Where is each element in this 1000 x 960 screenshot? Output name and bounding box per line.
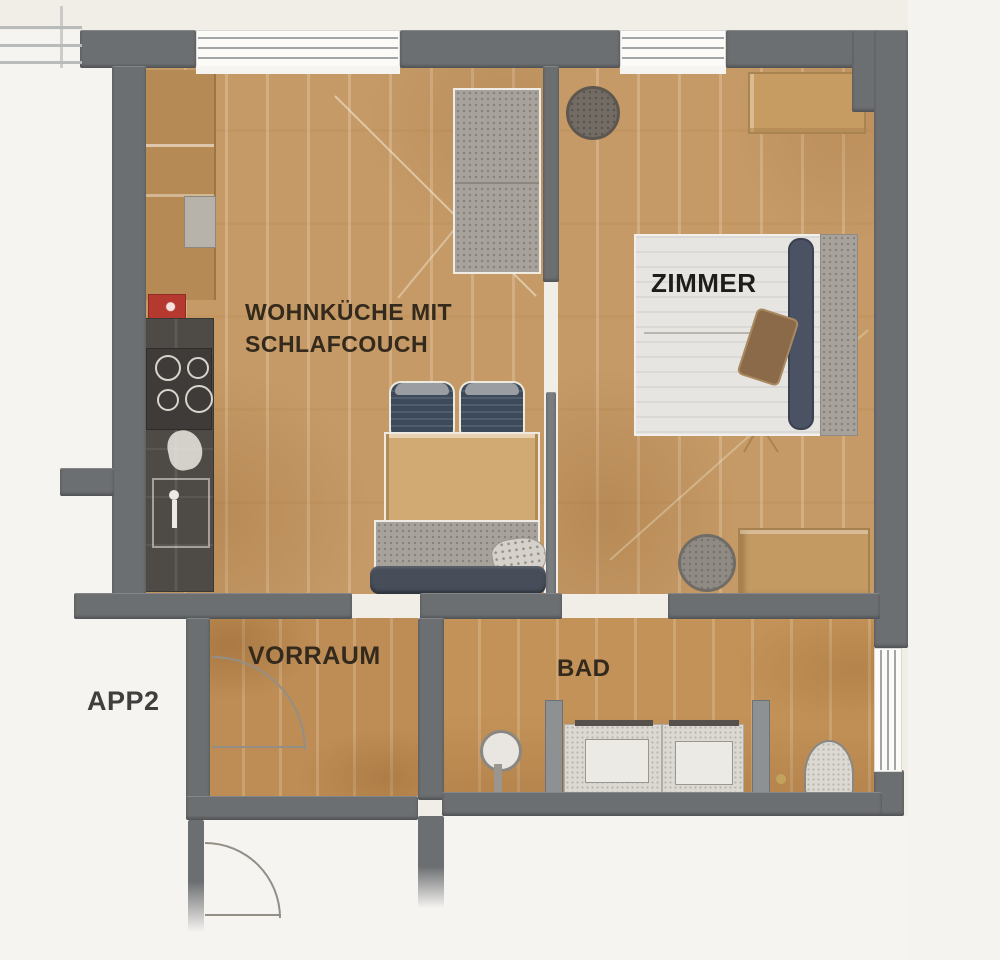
wall-hall-bath-divider: [418, 618, 444, 800]
chair-backrest: [395, 383, 449, 395]
kitchen-counter-dark: [140, 318, 214, 592]
bath-vanity-right: [662, 724, 744, 794]
wall-living-bedroom-lower: [546, 392, 556, 598]
neighbor-window-line: [0, 61, 82, 64]
bath-partition-left: [545, 700, 563, 794]
window-pane-line: [622, 37, 724, 39]
neighbor-wall-line-vertical: [60, 6, 63, 68]
wall-top-left: [80, 30, 196, 68]
vanity-top-bar: [575, 720, 653, 726]
kitchen-counter-upper: [146, 70, 216, 300]
outside-area-bottom: [0, 816, 1000, 960]
wall-middle-horizontal-right: [668, 593, 880, 619]
sofa-cushion-divider: [455, 182, 539, 184]
wall-living-bedroom-upper: [543, 66, 559, 282]
entry-door-leaf: [205, 914, 281, 916]
window-top-left: [196, 30, 400, 68]
bedroom-wardrobe-top: [748, 72, 866, 134]
stove-burner: [155, 355, 181, 381]
vanity-top-bar: [669, 720, 739, 726]
window-pane-line: [894, 650, 896, 770]
neighbor-window-line: [0, 26, 82, 29]
room-label-bedroom: ZIMMER: [651, 268, 757, 299]
stove-burner: [187, 357, 209, 379]
stove-burner: [185, 385, 213, 413]
room-label-living-line1: WOHNKÜCHE MIT: [245, 296, 452, 328]
window-pane-line: [887, 650, 889, 770]
stove-burner: [157, 389, 179, 411]
sink-faucet-dot: [169, 490, 179, 500]
room-label-bath: BAD: [557, 655, 611, 683]
bed-headboard-bench: [820, 234, 858, 436]
kitchen-appliance: [184, 196, 216, 248]
wall-below-divider: [418, 816, 444, 908]
sofa-upper: [453, 88, 541, 274]
sink-faucet: [172, 500, 177, 528]
window-pane-line: [880, 650, 882, 770]
wall-below-hall-left: [188, 820, 204, 932]
hall-door-leaf: [212, 746, 304, 748]
wall-left: [112, 66, 146, 598]
wall-middle-horizontal-center: [420, 593, 562, 619]
wall-left-stub: [60, 468, 114, 496]
counter-white-mark: [164, 427, 206, 473]
window-pane-line: [198, 57, 398, 59]
wall-top-middle: [400, 30, 620, 68]
window-pane-line: [622, 57, 724, 59]
vanity-inner: [675, 741, 733, 785]
apartment-label: APP2: [87, 686, 160, 717]
kitchen-counter-divider-line: [146, 144, 214, 147]
wall-middle-horizontal-left: [74, 593, 352, 619]
room-label-living-line2: SCHLAFCOUCH: [245, 328, 452, 360]
wall-bottom-bath: [442, 792, 882, 816]
window-right: [874, 648, 902, 772]
chair-backrest: [465, 383, 519, 395]
window-pane-line: [198, 47, 398, 49]
wall-right: [874, 30, 908, 648]
room-label-hall: VORRAUM: [248, 642, 381, 671]
window-top-right: [620, 30, 726, 68]
window-pane-line: [198, 37, 398, 39]
outside-area-right: [908, 0, 1000, 960]
bath-washbasin-pedestal: [494, 764, 502, 792]
window-sill: [620, 66, 726, 74]
bath-gold-fitting: [776, 774, 786, 784]
bath-partition-right: [752, 700, 770, 794]
sink-outline: [152, 478, 210, 548]
window-pane-line: [622, 47, 724, 49]
sofa-bed-base: [370, 566, 546, 594]
bedroom-stool: [678, 534, 736, 592]
outside-area-left: [0, 30, 112, 598]
wall-bottom-hall: [186, 796, 418, 820]
bath-vanity-left: [564, 724, 662, 794]
floor-plan: WOHNKÜCHE MIT SCHLAFCOUCH ZIMMER VORRAUM…: [0, 0, 1000, 960]
window-sill: [196, 66, 400, 74]
vanity-inner: [585, 739, 649, 783]
room-label-living: WOHNKÜCHE MIT SCHLAFCOUCH: [245, 296, 452, 360]
bedside-round-table: [566, 86, 620, 140]
stove-panel: [146, 348, 212, 430]
neighbor-window-line: [0, 44, 82, 47]
bedroom-desk: [738, 528, 870, 596]
dining-table: [384, 432, 540, 532]
wall-hall-left: [186, 618, 210, 802]
